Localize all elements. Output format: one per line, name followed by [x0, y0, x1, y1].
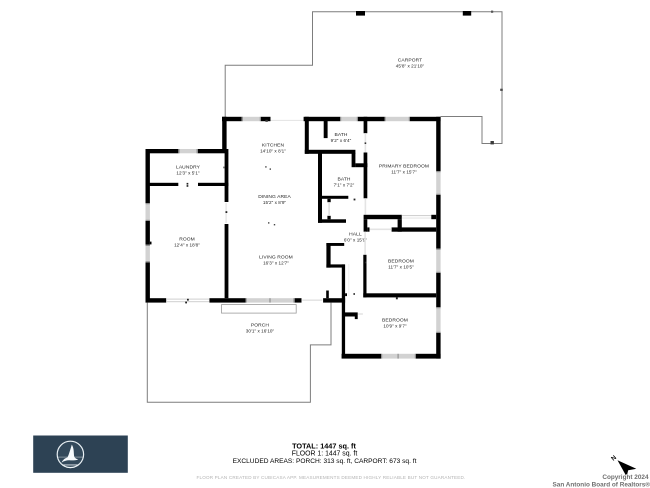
svg-text:11'7" x 15'7": 11'7" x 15'7": [391, 170, 417, 175]
svg-text:CARPORT: CARPORT: [398, 58, 423, 64]
svg-text:7'1" x 7'2": 7'1" x 7'2": [334, 183, 355, 188]
svg-text:PORCH: PORCH: [251, 323, 270, 329]
svg-text:DINING AREA: DINING AREA: [258, 194, 291, 200]
svg-text:LIVING ROOM: LIVING ROOM: [259, 254, 293, 260]
svg-text:BEDROOM: BEDROOM: [388, 258, 414, 264]
svg-text:9'2" x 6'4": 9'2" x 6'4": [331, 138, 352, 143]
svg-text:LAUNDRY: LAUNDRY: [176, 164, 201, 170]
svg-text:BEDROOM: BEDROOM: [382, 317, 408, 323]
svg-text:16'3" x 12'7": 16'3" x 12'7": [263, 261, 289, 266]
svg-text:15'2" x 8'9": 15'2" x 8'9": [263, 200, 287, 205]
svg-text:EXCLUDED AREAS: PORCH: 313 sq.: EXCLUDED AREAS: PORCH: 313 sq. ft, CARPO…: [233, 458, 417, 465]
svg-text:12'4" x 18'8": 12'4" x 18'8": [174, 243, 200, 248]
svg-text:KITCHEN: KITCHEN: [262, 142, 285, 148]
svg-text:45'8" x 21'10": 45'8" x 21'10": [396, 64, 425, 69]
svg-text:PRIMARY BEDROOM: PRIMARY BEDROOM: [379, 163, 429, 169]
svg-text:11'7" x 10'5": 11'7" x 10'5": [388, 265, 414, 270]
svg-text:FLOOR PLAN CREATED BY CUBICASA: FLOOR PLAN CREATED BY CUBICASA APP. MEAS…: [196, 475, 465, 480]
svg-text:San Antonio Board of Realtors®: San Antonio Board of Realtors®: [553, 480, 650, 488]
svg-text:BATH: BATH: [337, 177, 350, 183]
svg-text:FLOOR 1: 1447 sq. ft: FLOOR 1: 1447 sq. ft: [292, 451, 358, 458]
svg-text:HALL: HALL: [349, 231, 362, 237]
svg-text:6'0" x 15'9": 6'0" x 15'9": [344, 238, 368, 243]
svg-text:ROOM: ROOM: [179, 236, 195, 242]
svg-text:14'10" x 8'1": 14'10" x 8'1": [260, 149, 286, 154]
svg-text:N: N: [610, 454, 618, 463]
svg-text:Copyright 2024: Copyright 2024: [602, 474, 649, 481]
svg-text:30'1" x 16'10": 30'1" x 16'10": [246, 329, 275, 334]
svg-text:TOTAL: 1447 sq. ft: TOTAL: 1447 sq. ft: [292, 441, 356, 450]
svg-text:12'3" x 5'1": 12'3" x 5'1": [176, 171, 200, 176]
svg-text:BATH: BATH: [334, 132, 347, 138]
svg-text:10'9" x 9'7": 10'9" x 9'7": [383, 324, 407, 329]
